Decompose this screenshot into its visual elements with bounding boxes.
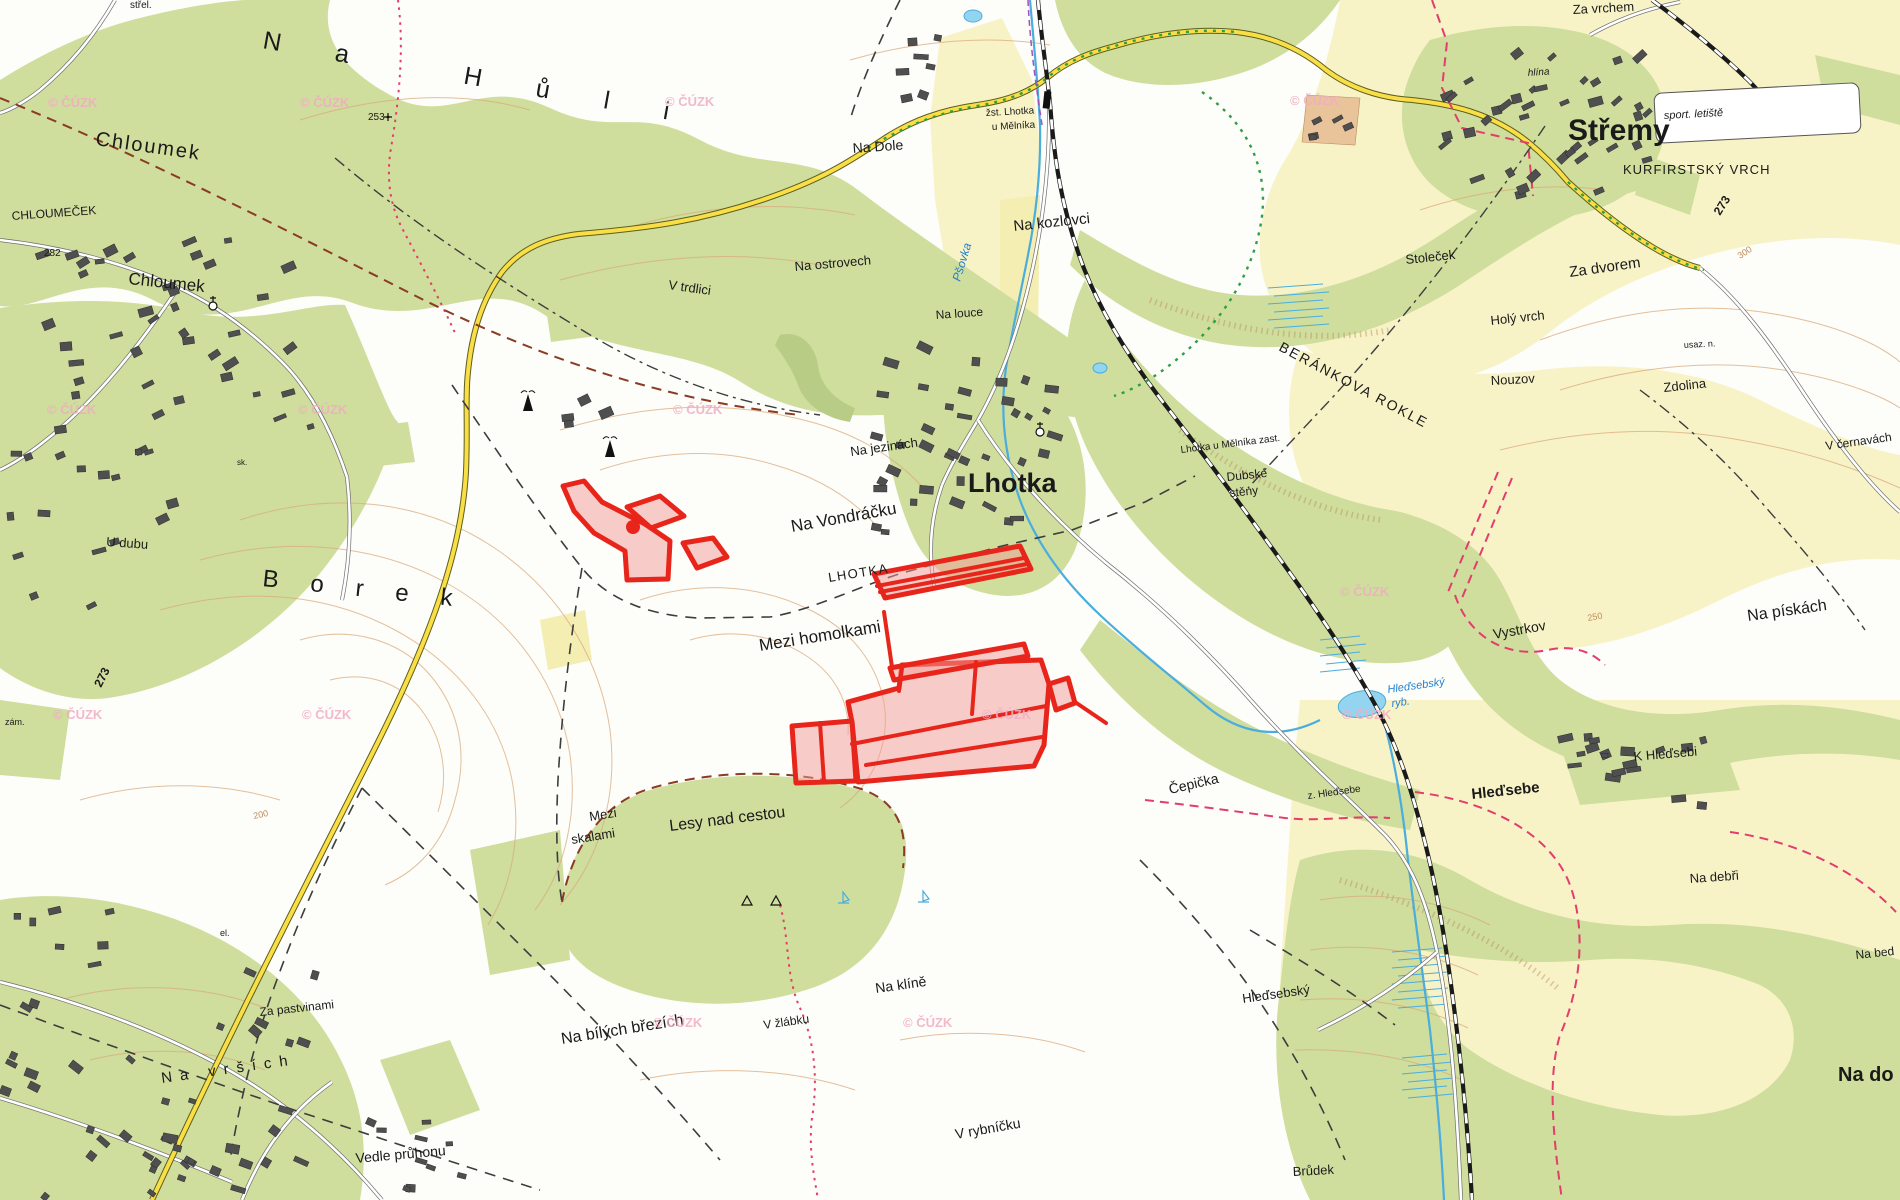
label-h282: 282: [44, 248, 61, 259]
parcel-c-right-para: [1049, 678, 1075, 710]
building: [69, 359, 84, 366]
label-hledsebsky-ryb-2: ryb.: [1391, 696, 1411, 710]
parcel-dot: [626, 520, 640, 534]
building: [945, 403, 954, 410]
parcel-line-spur-east: [1075, 702, 1106, 723]
label-c200: 200: [252, 808, 269, 821]
building: [926, 63, 936, 70]
building: [11, 451, 22, 457]
building: [1697, 801, 1707, 809]
building: [877, 391, 889, 398]
parcel-borek-rhomb: [683, 538, 727, 568]
watermark-cuzk: © ČÚZK: [1340, 584, 1390, 599]
building: [54, 425, 67, 434]
label-usaz-n: usaz. n.: [1684, 338, 1716, 350]
building: [98, 471, 110, 480]
building: [14, 913, 21, 919]
building: [910, 499, 917, 506]
label-strel: střel.: [130, 0, 152, 11]
building: [135, 449, 141, 455]
building: [95, 259, 105, 265]
building: [871, 523, 882, 532]
label-zam: zám.: [5, 717, 25, 727]
label-na-piskach: Na pískách: [1746, 597, 1828, 625]
building: [1010, 516, 1024, 521]
building: [422, 1120, 431, 1125]
label-mezi-homolkami: Mezi homolkami: [758, 617, 882, 655]
building: [914, 54, 929, 60]
label-sk: sk.: [237, 458, 247, 467]
building: [1671, 795, 1686, 803]
building: [996, 378, 1008, 387]
label-nouzov: Nouzov: [1490, 371, 1535, 388]
church-icon: [1036, 422, 1044, 436]
label-na-do: Na do: [1838, 1064, 1894, 1086]
building: [55, 944, 64, 950]
building: [577, 394, 591, 407]
building: [957, 476, 965, 485]
label-h253: 253: [368, 112, 385, 123]
building: [972, 357, 980, 366]
building: [934, 34, 942, 41]
watermark-cuzk: © ČÚZK: [903, 1015, 953, 1030]
building: [310, 970, 319, 980]
map-canvas: střel.Na HůliChloumekCHLOUMEČEK282Chloum…: [0, 0, 1900, 1200]
building: [908, 38, 917, 46]
label-v-zlabku: V žlábku: [762, 1012, 810, 1032]
building: [77, 466, 86, 473]
boat-icon: [918, 891, 929, 902]
building: [881, 529, 889, 535]
building: [71, 391, 80, 399]
label-zst-2: u Mělníka: [992, 120, 1036, 133]
building: [365, 1117, 376, 1127]
label-vedle-pruhonu: Vedle průhonu: [355, 1142, 446, 1166]
building: [446, 1141, 453, 1146]
label-stremy: Střemy: [1568, 114, 1670, 147]
building: [457, 1172, 467, 1179]
label-hlina: hlína: [1527, 66, 1550, 79]
antenna-icon: [603, 437, 617, 457]
label-na-kline: Na klíně: [874, 973, 927, 996]
building: [874, 485, 887, 492]
watermark-cuzk: © ČÚZK: [982, 707, 1032, 722]
building: [60, 342, 72, 351]
building: [900, 93, 912, 103]
label-brudek: Brůdek: [1292, 1162, 1334, 1179]
building: [38, 510, 50, 517]
label-cepicka: Čepička: [1167, 770, 1220, 797]
label-borek: Borek: [261, 565, 485, 615]
watermark-cuzk: © ČÚZK: [53, 707, 103, 722]
building: [98, 941, 109, 949]
building: [1045, 385, 1059, 394]
watermark-cuzk: © ČÚZK: [300, 95, 350, 110]
station-building: [1043, 92, 1051, 109]
building: [1602, 753, 1608, 757]
watermark-cuzk: © ČÚZK: [302, 707, 352, 722]
building: [415, 1135, 428, 1142]
building: [224, 238, 232, 244]
watermark-cuzk: © ČÚZK: [1342, 707, 1392, 722]
label-v-rybnicku: V rybníčku: [954, 1115, 1022, 1142]
label-na-dole: Na Dole: [852, 136, 904, 156]
antenna-icon: [521, 391, 535, 411]
building: [917, 90, 929, 101]
watermark-cuzk: © ČÚZK: [298, 402, 348, 417]
label-kurfirstsky-vrch: KURFIRSTSKÝ VRCH: [1623, 162, 1770, 177]
watermark-cuzk: © ČÚZK: [1290, 93, 1340, 108]
label-el: el.: [220, 928, 230, 938]
building: [598, 406, 614, 420]
watermark-cuzk: © ČÚZK: [47, 402, 97, 417]
building: [377, 1128, 387, 1133]
building: [919, 485, 933, 494]
building: [30, 918, 36, 926]
building: [896, 68, 909, 75]
label-lhotka-big: Lhotka: [968, 468, 1057, 498]
building: [564, 420, 574, 428]
label-hledsebsky-ryb-1: Hleďsebský: [1387, 676, 1447, 696]
building: [1001, 396, 1014, 406]
building: [426, 1164, 436, 1171]
parcel-line-connector-b-c: [884, 612, 892, 667]
church-icon: [209, 296, 217, 310]
watermark-cuzk: © ČÚZK: [48, 95, 98, 110]
label-u-dubu: U dubu: [106, 534, 149, 552]
watermark-cuzk: © ČÚZK: [673, 402, 723, 417]
building: [7, 512, 14, 521]
label-steny: stěny: [1229, 483, 1259, 500]
building: [1309, 134, 1317, 140]
topographic-map[interactable]: střel.Na HůliChloumekCHLOUMEČEK282Chloum…: [0, 0, 1900, 1200]
watermark-cuzk: © ČÚZK: [653, 1015, 703, 1030]
watermark-cuzk: © ČÚZK: [665, 94, 715, 109]
